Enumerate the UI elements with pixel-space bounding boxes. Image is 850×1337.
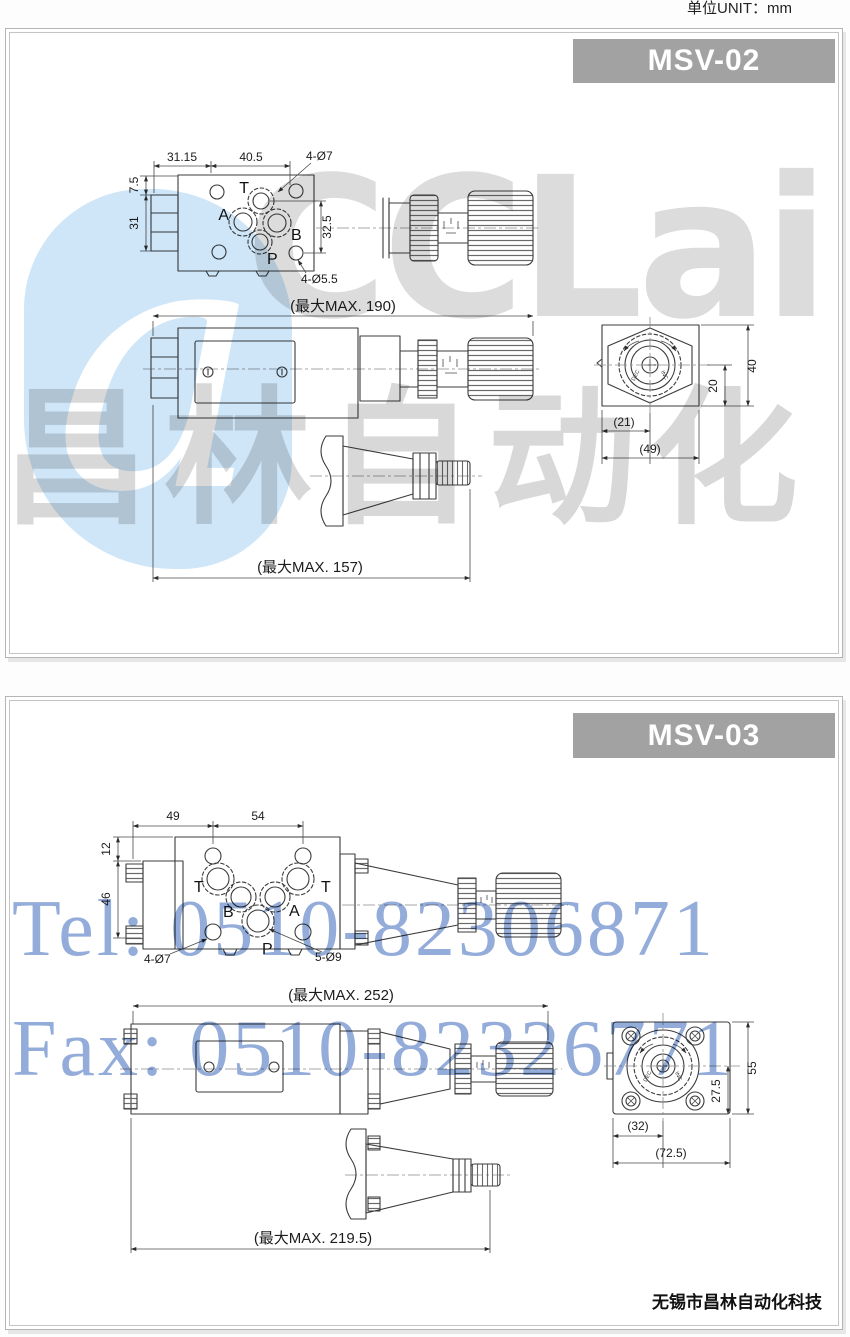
msv02-drawing: T A B P 31.15 40.5 4-Ø7 7.5 31 [10, 33, 839, 653]
panel-msv03: MSV-03 [5, 696, 843, 1330]
msv03-dim-55: 55 [745, 1061, 759, 1075]
msv02-end-view: DEC INC [594, 317, 710, 413]
msv02-plan-view: T A B P [151, 175, 314, 276]
msv03-dim-5d9: 5-Ø9 [315, 950, 342, 964]
msv03-end-view: DEC INC [604, 1013, 740, 1121]
msv03-drawing: T B A T P 49 54 12 46 4-Ø7 5-Ø9 [10, 701, 839, 1326]
msv03-dim-49: 49 [166, 809, 180, 823]
msv03-screw-view: (最大MAX. 219.5) [131, 1118, 512, 1253]
msv02-dim-40-5: 40.5 [239, 150, 263, 164]
msv02-port-p: P [267, 251, 278, 268]
msv02-dim-31-15: 31.15 [167, 150, 197, 164]
panel-msv02: MSV-02 [5, 28, 843, 658]
unit-label: 单位UNIT：mm [687, 0, 792, 18]
msv02-dim-32-5: 32.5 [320, 215, 334, 239]
msv02-dim-31: 31 [127, 216, 141, 230]
msv03-dim-max-219-5: (最大MAX. 219.5) [254, 1230, 372, 1247]
msv03-dim-46: 46 [99, 892, 113, 906]
msv03-port-t2: T [321, 879, 331, 896]
msv02-port-t: T [239, 180, 249, 197]
msv02-port-b: B [291, 227, 302, 244]
msv03-dim-4d7: 4-Ø7 [144, 952, 171, 966]
msv02-dim-49: (49) [639, 442, 660, 456]
msv03-knob-partial-view [340, 854, 568, 949]
msv02-dim-4d7: 4-Ø7 [306, 149, 333, 163]
msv03-dim-12: 12 [99, 842, 113, 856]
msv03-side-view [120, 1024, 562, 1114]
model-header-msv03: MSV-03 [573, 713, 835, 758]
msv03-dim-max-252: (最大MAX. 252) [288, 987, 394, 1004]
msv02-dim-max-190: (最大MAX. 190) [290, 298, 396, 315]
model-header-msv02: MSV-02 [573, 39, 835, 83]
msv03-plan-view: T B A T P [126, 837, 340, 958]
company-name: 无锡市昌林自动化科技 [652, 1288, 822, 1313]
panel-msv03-inner: MSV-03 [9, 700, 839, 1326]
msv03-port-b: B [223, 904, 234, 921]
msv02-screw-view: (最大MAX. 157) [153, 405, 482, 582]
msv03-port-a: A [289, 903, 300, 920]
msv03-dim-54: 54 [251, 809, 265, 823]
msv02-dim-7-5: 7.5 [127, 176, 141, 193]
msv03-knob-dec: DEC [643, 1070, 654, 1083]
msv03-port-t1: T [194, 879, 204, 896]
msv03-dim-32: (32) [627, 1119, 648, 1133]
msv02-plan-dimensions: 31.15 40.5 4-Ø7 7.5 31 32.5 4-Ø5.5 [127, 149, 338, 286]
msv02-dim-40: 40 [745, 359, 759, 373]
msv03-dim-27-5: 27.5 [709, 1079, 723, 1103]
msv02-max-length-dim: (最大MAX. 190) [153, 298, 533, 336]
msv02-dim-4d55: 4-Ø5.5 [301, 272, 338, 286]
msv02-knob-partial-view [316, 191, 538, 265]
msv03-port-p: P [262, 941, 273, 958]
msv03-knob-inc: INC [673, 1071, 683, 1082]
msv02-dim-21: (21) [613, 415, 634, 429]
msv03-dim-72-5: (72.5) [655, 1146, 686, 1160]
msv02-side-view [143, 328, 542, 418]
msv02-port-a: A [218, 207, 229, 224]
msv02-dim-20: 20 [706, 379, 720, 393]
panel-msv02-inner: MSV-02 [9, 32, 839, 654]
msv02-dim-max-157: (最大MAX. 157) [257, 559, 363, 576]
